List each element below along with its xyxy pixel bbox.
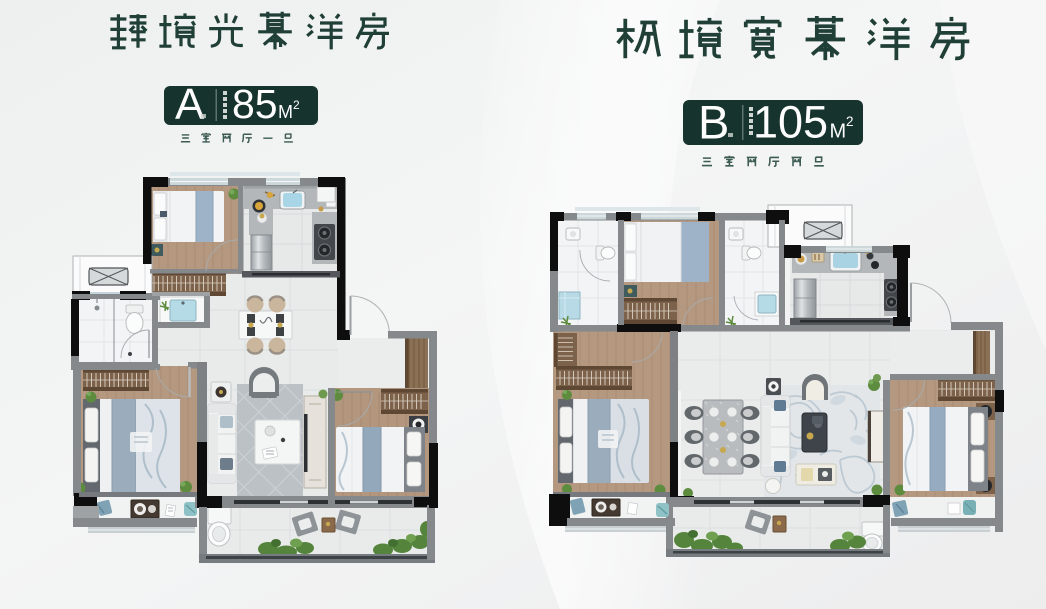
svg-text:85: 85 [232, 86, 278, 125]
svg-text:B: B [698, 100, 729, 145]
svg-text:2: 2 [846, 114, 854, 129]
svg-text:M: M [278, 102, 293, 122]
svg-text:2: 2 [293, 98, 300, 112]
svg-text:A: A [175, 86, 205, 125]
svg-text:105: 105 [753, 100, 828, 145]
svg-text:M: M [830, 121, 847, 143]
